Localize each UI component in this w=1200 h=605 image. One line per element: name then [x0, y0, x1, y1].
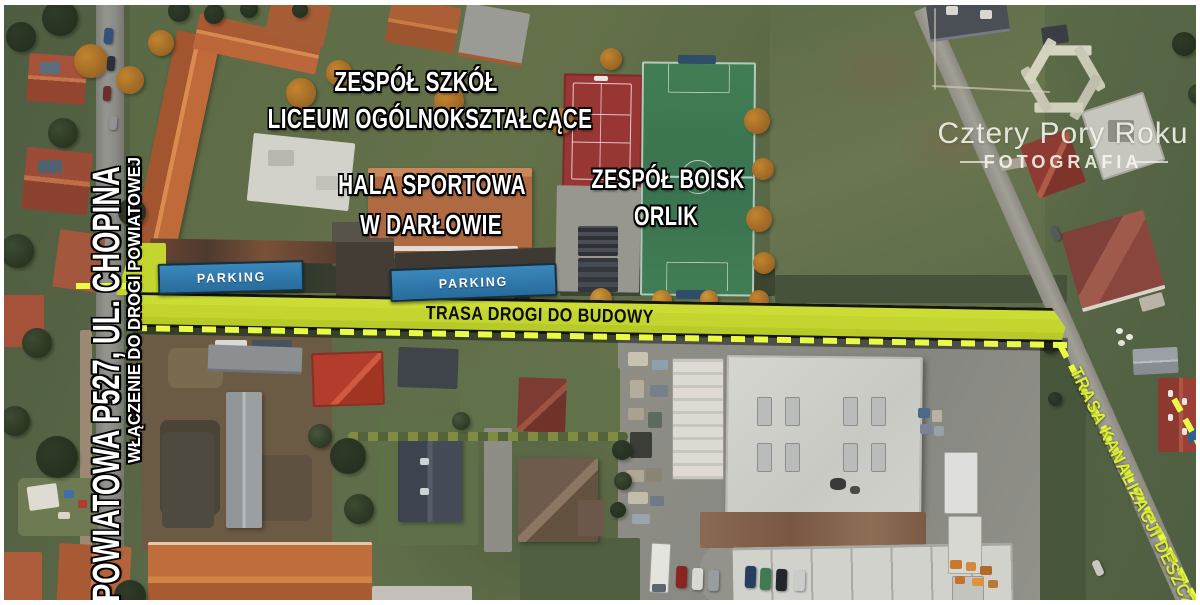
- car: [1091, 559, 1105, 577]
- material-pile: [650, 385, 668, 397]
- tree: [600, 48, 622, 70]
- car: [676, 566, 688, 588]
- material-pile: [650, 496, 664, 506]
- watermark-name: Cztery Pory Roku: [937, 117, 1188, 151]
- tree: [752, 158, 774, 180]
- tree: [42, 0, 78, 36]
- court-mark: [594, 76, 608, 81]
- orange-building-bottom: [148, 542, 372, 605]
- sports-hall-label-line1: HALA SPORTOWA: [338, 171, 526, 199]
- warehouse-stain: [830, 478, 846, 490]
- roof-window: [1168, 390, 1173, 397]
- tree: [330, 438, 366, 474]
- container-trailer: [944, 452, 978, 514]
- tree: [610, 502, 626, 518]
- dark-red-house: [517, 377, 567, 433]
- meadow-brown-patch: [820, 30, 940, 110]
- material-pile: [632, 514, 650, 524]
- tree: [36, 436, 78, 478]
- material-pile: [630, 380, 644, 398]
- tree: [744, 108, 770, 134]
- courtyard-detail: [316, 176, 338, 190]
- car: [103, 28, 113, 45]
- sports-hall-label-line2: W DARŁOWIE: [360, 211, 502, 239]
- penalty-box: [668, 64, 730, 94]
- material-pile: [628, 352, 648, 366]
- skylight: [843, 443, 858, 472]
- skylight: [843, 397, 858, 426]
- car: [708, 570, 720, 591]
- material-pile: [988, 580, 998, 588]
- tree: [0, 234, 34, 268]
- photo-frame-left: [0, 0, 4, 605]
- white-tent: [672, 358, 724, 480]
- tree: [204, 4, 224, 24]
- car: [745, 566, 757, 588]
- picnic-table: [1126, 334, 1133, 340]
- material-pile: [932, 410, 942, 422]
- watermark-rule-left: [960, 161, 994, 163]
- material-pile: [628, 408, 644, 420]
- warehouse-forecourt: [700, 512, 926, 548]
- house-gable: [946, 6, 958, 15]
- garden-lawn: [520, 538, 640, 605]
- bleachers: [578, 226, 618, 256]
- skylight: [871, 443, 886, 472]
- orlik-label-line1: ZESPÓŁ BOISK: [591, 166, 744, 193]
- house-roof: [21, 147, 93, 216]
- tree: [1048, 392, 1062, 406]
- scenery-shape: [1069, 73, 1102, 120]
- photo-frame-right: [1196, 0, 1200, 605]
- school-label-line1: ZESPÓŁ SZKÓŁ: [334, 68, 497, 96]
- aerial-photo: TRASA DROGI DO BUDOWY TRASA KANALIZACJI …: [0, 0, 1200, 605]
- car: [106, 56, 115, 72]
- tree: [48, 118, 78, 148]
- brown-house-wing: [578, 500, 604, 536]
- tree: [22, 328, 52, 358]
- county-road-label: POWIATOWA P527, UL. CHOPINA: [88, 166, 126, 602]
- house-gable: [980, 10, 992, 19]
- material-pile: [972, 578, 984, 586]
- farm-ruin: [162, 432, 214, 528]
- skylight: [785, 443, 800, 472]
- tree: [612, 440, 632, 460]
- car: [692, 568, 704, 590]
- dark-block-between-parkings: [336, 238, 394, 304]
- skylight: [757, 397, 772, 426]
- material-pile: [628, 492, 648, 504]
- field-strip-above-route: [775, 275, 1067, 303]
- house-roof: [0, 552, 42, 605]
- watermark-subtitle: FOTOGRAFIA: [984, 152, 1143, 173]
- dark-house: [397, 347, 458, 389]
- scenery-shape: [1021, 37, 1105, 120]
- material-pile: [934, 426, 944, 436]
- car: [109, 116, 118, 131]
- picnic-table: [1118, 340, 1125, 346]
- red-house: [311, 351, 385, 407]
- parking-sign-right-label: PARKING: [438, 267, 508, 299]
- material-pile: [966, 562, 976, 571]
- parking-sign-right: PARKING: [389, 263, 557, 302]
- camera-aperture-icon: [1021, 37, 1105, 121]
- house-dormer: [420, 488, 429, 495]
- material-pile: [980, 566, 992, 575]
- warehouse-building: [725, 355, 923, 517]
- tree: [148, 30, 174, 56]
- playground-equipment: [58, 512, 70, 519]
- dark-blue-house: [398, 436, 462, 522]
- tree: [753, 252, 775, 274]
- house-solar-panel: [38, 160, 62, 173]
- house-solar-panel: [40, 62, 60, 74]
- material-pile: [920, 424, 932, 434]
- picnic-table: [1116, 328, 1123, 334]
- penalty-box: [666, 262, 728, 292]
- farm-shed: [208, 344, 303, 374]
- playground-canopy: [26, 483, 59, 511]
- courtyard-detail: [268, 150, 294, 166]
- gray-shed: [1132, 347, 1178, 375]
- roof-window: [1182, 398, 1187, 405]
- tree: [746, 206, 772, 232]
- house-dormer: [420, 458, 429, 465]
- county-road-connection-label: WŁĄCZENIE DO DROGI POWIATOWEJ: [126, 157, 144, 463]
- tree: [6, 22, 36, 52]
- parking-sign-left-label: PARKING: [196, 263, 266, 292]
- tree: [74, 44, 108, 78]
- tree: [308, 424, 332, 448]
- tree: [116, 66, 144, 94]
- warehouse-stain: [850, 486, 860, 494]
- roof-window: [1168, 414, 1173, 421]
- school-annex: [458, 3, 530, 67]
- material-pile: [950, 560, 962, 569]
- car: [760, 568, 772, 590]
- skylight: [871, 397, 886, 426]
- material-pile: [630, 432, 652, 458]
- tree: [614, 472, 632, 490]
- school-label-line2: LICEUM OGÓLNOKSZTAŁCĄCE: [268, 105, 593, 133]
- truck-cab: [652, 584, 666, 592]
- material-pile: [648, 412, 662, 428]
- tree: [344, 494, 374, 524]
- parking-sign-left: PARKING: [158, 260, 305, 295]
- tree: [452, 412, 470, 430]
- photo-frame-top: [0, 0, 1200, 5]
- playground-equipment: [64, 490, 74, 498]
- tree: [0, 406, 30, 436]
- route-label: TRASA DROGI DO BUDOWY: [425, 303, 653, 329]
- skylight: [757, 443, 772, 472]
- roof-row-behind-parking: [150, 238, 340, 263]
- car: [794, 570, 806, 591]
- photo-frame-bottom: [0, 600, 1200, 605]
- material-pile: [918, 408, 930, 418]
- hedge-row: [348, 432, 628, 441]
- material-pile: [955, 576, 965, 584]
- scenery-shape: [1024, 37, 1057, 84]
- material-pile: [652, 360, 668, 370]
- material-pile: [646, 468, 662, 482]
- watermark-rule-right: [1134, 161, 1168, 163]
- skylight: [785, 397, 800, 426]
- watermark: Cztery Pory Roku FOTOGRAFIA: [930, 25, 1190, 175]
- bleachers: [578, 258, 618, 292]
- orlik-label-line2: ORLIK: [634, 203, 698, 230]
- car: [103, 86, 112, 101]
- annotated-aerial-map: TRASA DROGI DO BUDOWY TRASA KANALIZACJI …: [0, 0, 1200, 605]
- goal: [678, 55, 716, 64]
- farm-barn: [226, 392, 262, 528]
- driveway: [484, 428, 512, 552]
- car: [776, 569, 788, 591]
